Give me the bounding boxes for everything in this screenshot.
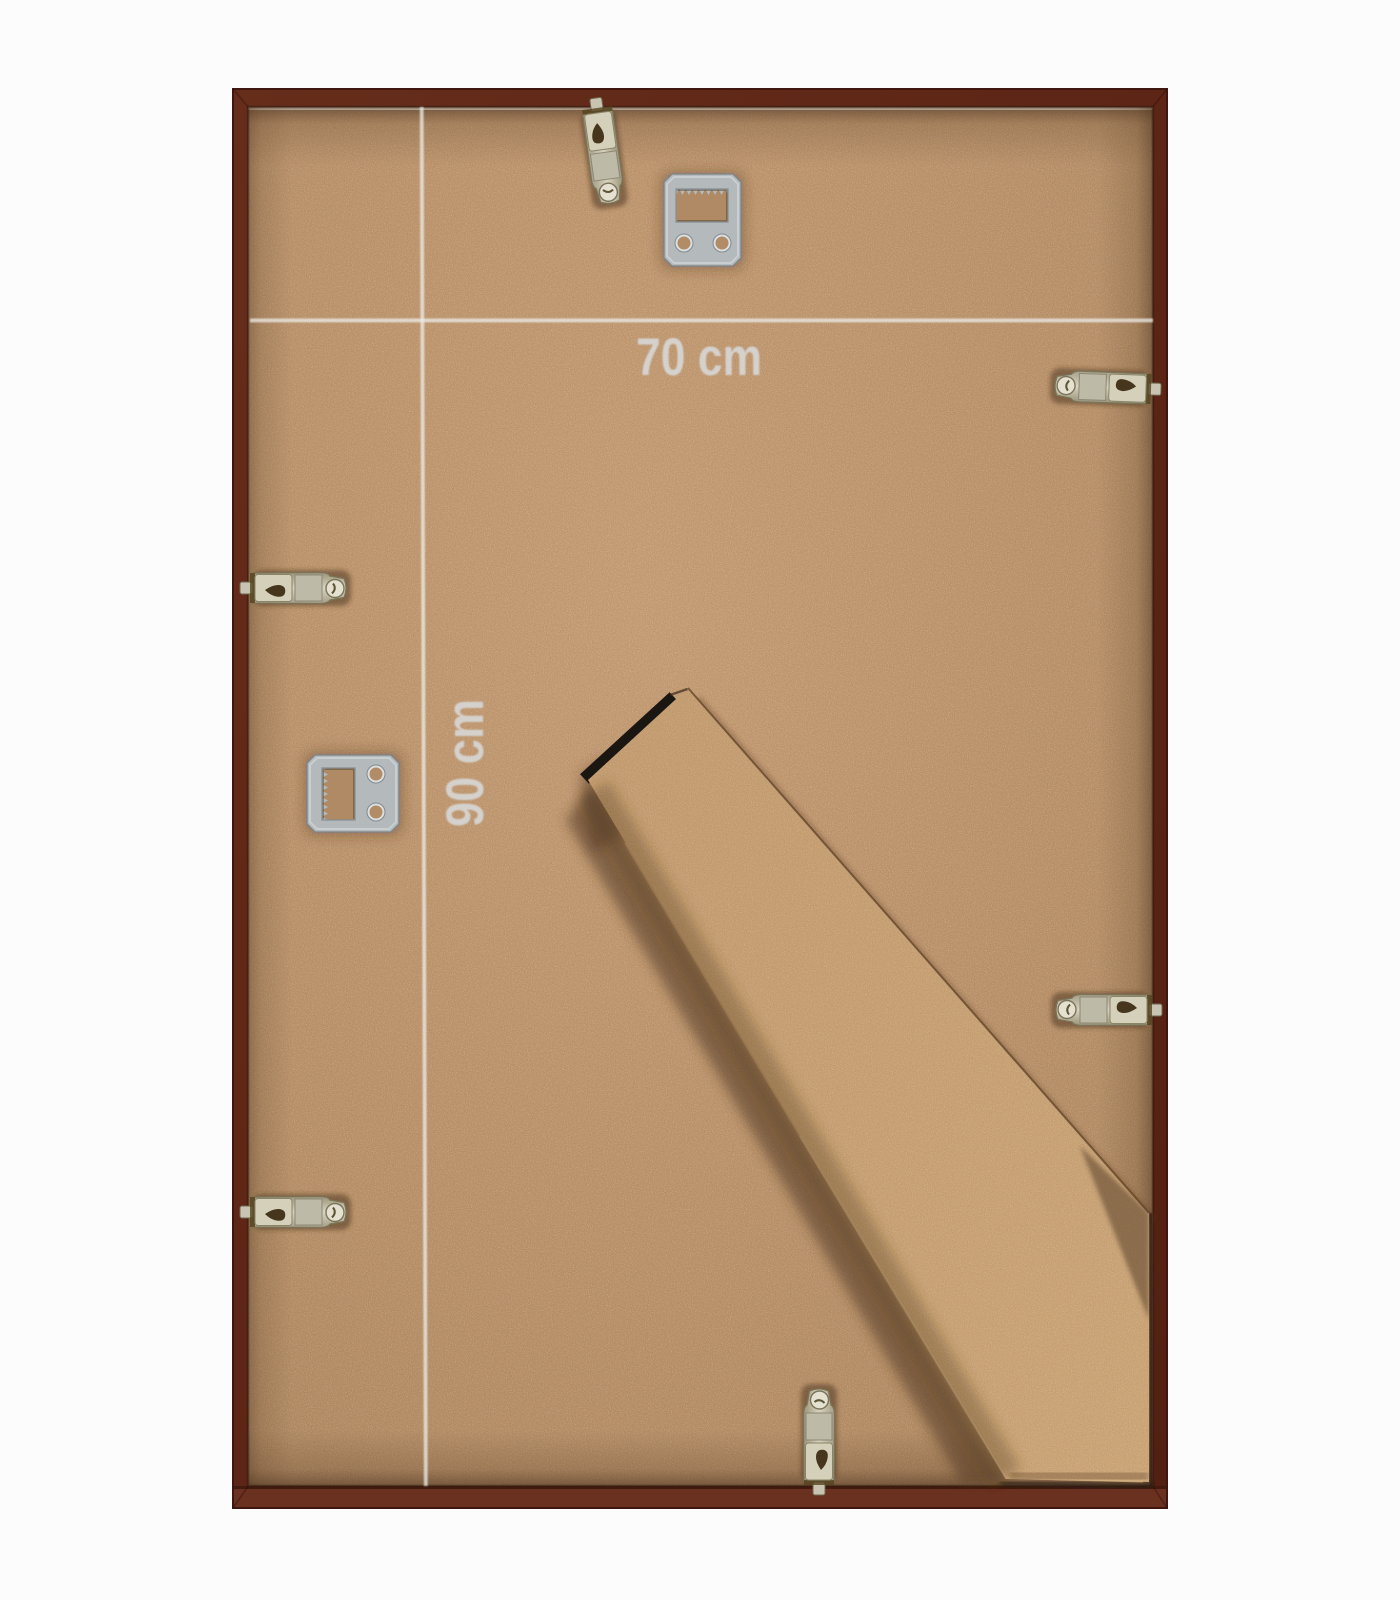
svg-text:90 cm: 90 cm [436,699,495,827]
svg-text:70 cm: 70 cm [636,328,762,387]
